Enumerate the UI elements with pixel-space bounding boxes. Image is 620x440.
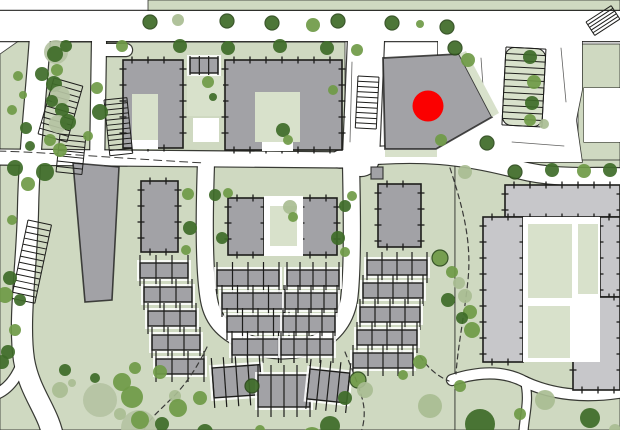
tree-canopy [25, 141, 35, 151]
margin [0, 430, 620, 440]
3 [187, 55, 221, 76]
layer-marker [413, 91, 444, 122]
building-small-annex [371, 167, 383, 179]
tree-canopy [202, 76, 214, 88]
tree-canopy [273, 39, 287, 53]
tree-canopy [441, 293, 455, 307]
tree-canopy [46, 95, 58, 107]
tree-canopy [173, 39, 187, 53]
tree-canopy [209, 189, 221, 201]
courtyard [132, 94, 158, 140]
tree-canopy [416, 20, 424, 28]
tree-canopy [535, 390, 555, 410]
tree-canopy [283, 200, 297, 214]
tree-canopy [347, 191, 357, 201]
road [0, 157, 350, 160]
tree-canopy [19, 91, 27, 99]
tree-canopy [155, 417, 169, 431]
tree-canopy [283, 135, 293, 145]
tree-canopy [83, 131, 93, 141]
tree-canopy [524, 114, 536, 126]
courtyard [193, 118, 219, 142]
tree-canopy [60, 114, 76, 130]
tree-canopy [209, 93, 217, 101]
building-loop-apartment-east [298, 195, 341, 259]
tree-canopy [223, 188, 233, 198]
tree-canopy [51, 64, 63, 76]
tree-canopy [116, 40, 128, 52]
tree-canopy [340, 247, 350, 257]
4 [255, 365, 313, 417]
tree-canopy [418, 394, 442, 418]
tree-canopy [385, 16, 399, 30]
tree-canopy [440, 20, 454, 34]
tree-canopy [328, 85, 338, 95]
tree-canopy [603, 163, 617, 177]
tree-canopy [181, 245, 191, 255]
tree-canopy [114, 408, 126, 420]
site-plan-svg [0, 0, 620, 440]
tree-canopy [35, 67, 49, 81]
tree-canopy [357, 382, 373, 398]
tree-canopy [14, 294, 26, 306]
tree-canopy [193, 391, 207, 405]
tree-canopy [90, 373, 100, 383]
tree-canopy [92, 104, 108, 120]
tree-canopy [413, 355, 427, 369]
tree-canopy [53, 143, 67, 157]
tree-canopy [464, 322, 480, 338]
tree-canopy [3, 271, 17, 285]
building-mid-east [375, 181, 425, 251]
tree-canopy [9, 324, 21, 336]
tree-canopy [523, 50, 537, 64]
courtyard [528, 306, 570, 358]
tree-canopy [276, 123, 290, 137]
courtyard [132, 140, 158, 149]
tree-canopy [59, 364, 71, 376]
tree-canopy [21, 177, 35, 191]
tree-canopy [83, 383, 117, 417]
tree-canopy [121, 386, 143, 408]
selected-location-marker[interactable] [413, 91, 444, 122]
tree-canopy [143, 15, 157, 29]
tree-canopy [288, 212, 298, 222]
tree-canopy [265, 16, 279, 30]
tree-canopy [13, 71, 23, 81]
tree-canopy [169, 399, 187, 417]
tree-canopy [458, 289, 472, 303]
road [584, 88, 620, 142]
tree-canopy [36, 163, 54, 181]
tree-canopy [91, 82, 103, 94]
tree-canopy [131, 411, 149, 429]
tree-canopy [52, 382, 68, 398]
tree-canopy [153, 365, 167, 379]
tree-canopy [44, 134, 56, 146]
building-se-complex-north-bar [502, 182, 620, 221]
courtyard [528, 224, 572, 298]
road [361, 40, 366, 158]
tree-canopy [577, 164, 591, 178]
tree-canopy [216, 232, 228, 244]
tree-canopy [20, 122, 32, 134]
tree-canopy [7, 160, 23, 176]
tree-canopy [220, 14, 234, 28]
tree-canopy [453, 277, 465, 289]
tree-canopy [527, 75, 541, 89]
tree-canopy [456, 312, 468, 324]
tree-canopy [351, 44, 363, 56]
tree-canopy [458, 165, 472, 179]
building-mid-west [138, 178, 182, 256]
tree-canopy [525, 96, 539, 110]
tree-canopy [331, 231, 345, 245]
tree-canopy [7, 215, 17, 225]
tree-canopy [514, 408, 526, 420]
tree-canopy [7, 105, 17, 115]
tree-canopy [461, 53, 475, 67]
tree-canopy [338, 391, 352, 405]
building-loop-apartment-west [225, 195, 268, 259]
tree-canopy [129, 362, 141, 374]
tree-canopy [320, 41, 334, 55]
tree-canopy [331, 14, 345, 28]
tree-canopy [183, 221, 197, 235]
tree-canopy [432, 250, 448, 266]
site-plan [0, 0, 620, 440]
layer-frame [0, 430, 620, 440]
tree-canopy [221, 41, 235, 55]
tree-canopy [448, 41, 462, 55]
tree-canopy [245, 379, 259, 393]
tree-canopy [182, 188, 194, 200]
tree-canopy [339, 200, 351, 212]
tree-canopy [539, 119, 549, 129]
courtyard [385, 150, 437, 157]
tree-canopy [446, 266, 458, 278]
tree-canopy [60, 40, 72, 52]
tree-canopy [398, 370, 408, 380]
tree-canopy [172, 14, 184, 26]
tree-canopy [480, 136, 494, 150]
courtyard [578, 224, 598, 294]
courtyard [255, 92, 300, 142]
tree-canopy [545, 163, 559, 177]
tree-canopy [580, 408, 600, 428]
tree-canopy [68, 379, 76, 387]
building-se-complex-west-wing [480, 214, 527, 366]
tree-canopy [454, 380, 466, 392]
tree-canopy [435, 134, 447, 146]
tree-canopy [306, 18, 320, 32]
tree-canopy [508, 165, 522, 179]
building-se-complex-east-wing [597, 214, 620, 301]
green-area [148, 0, 620, 11]
